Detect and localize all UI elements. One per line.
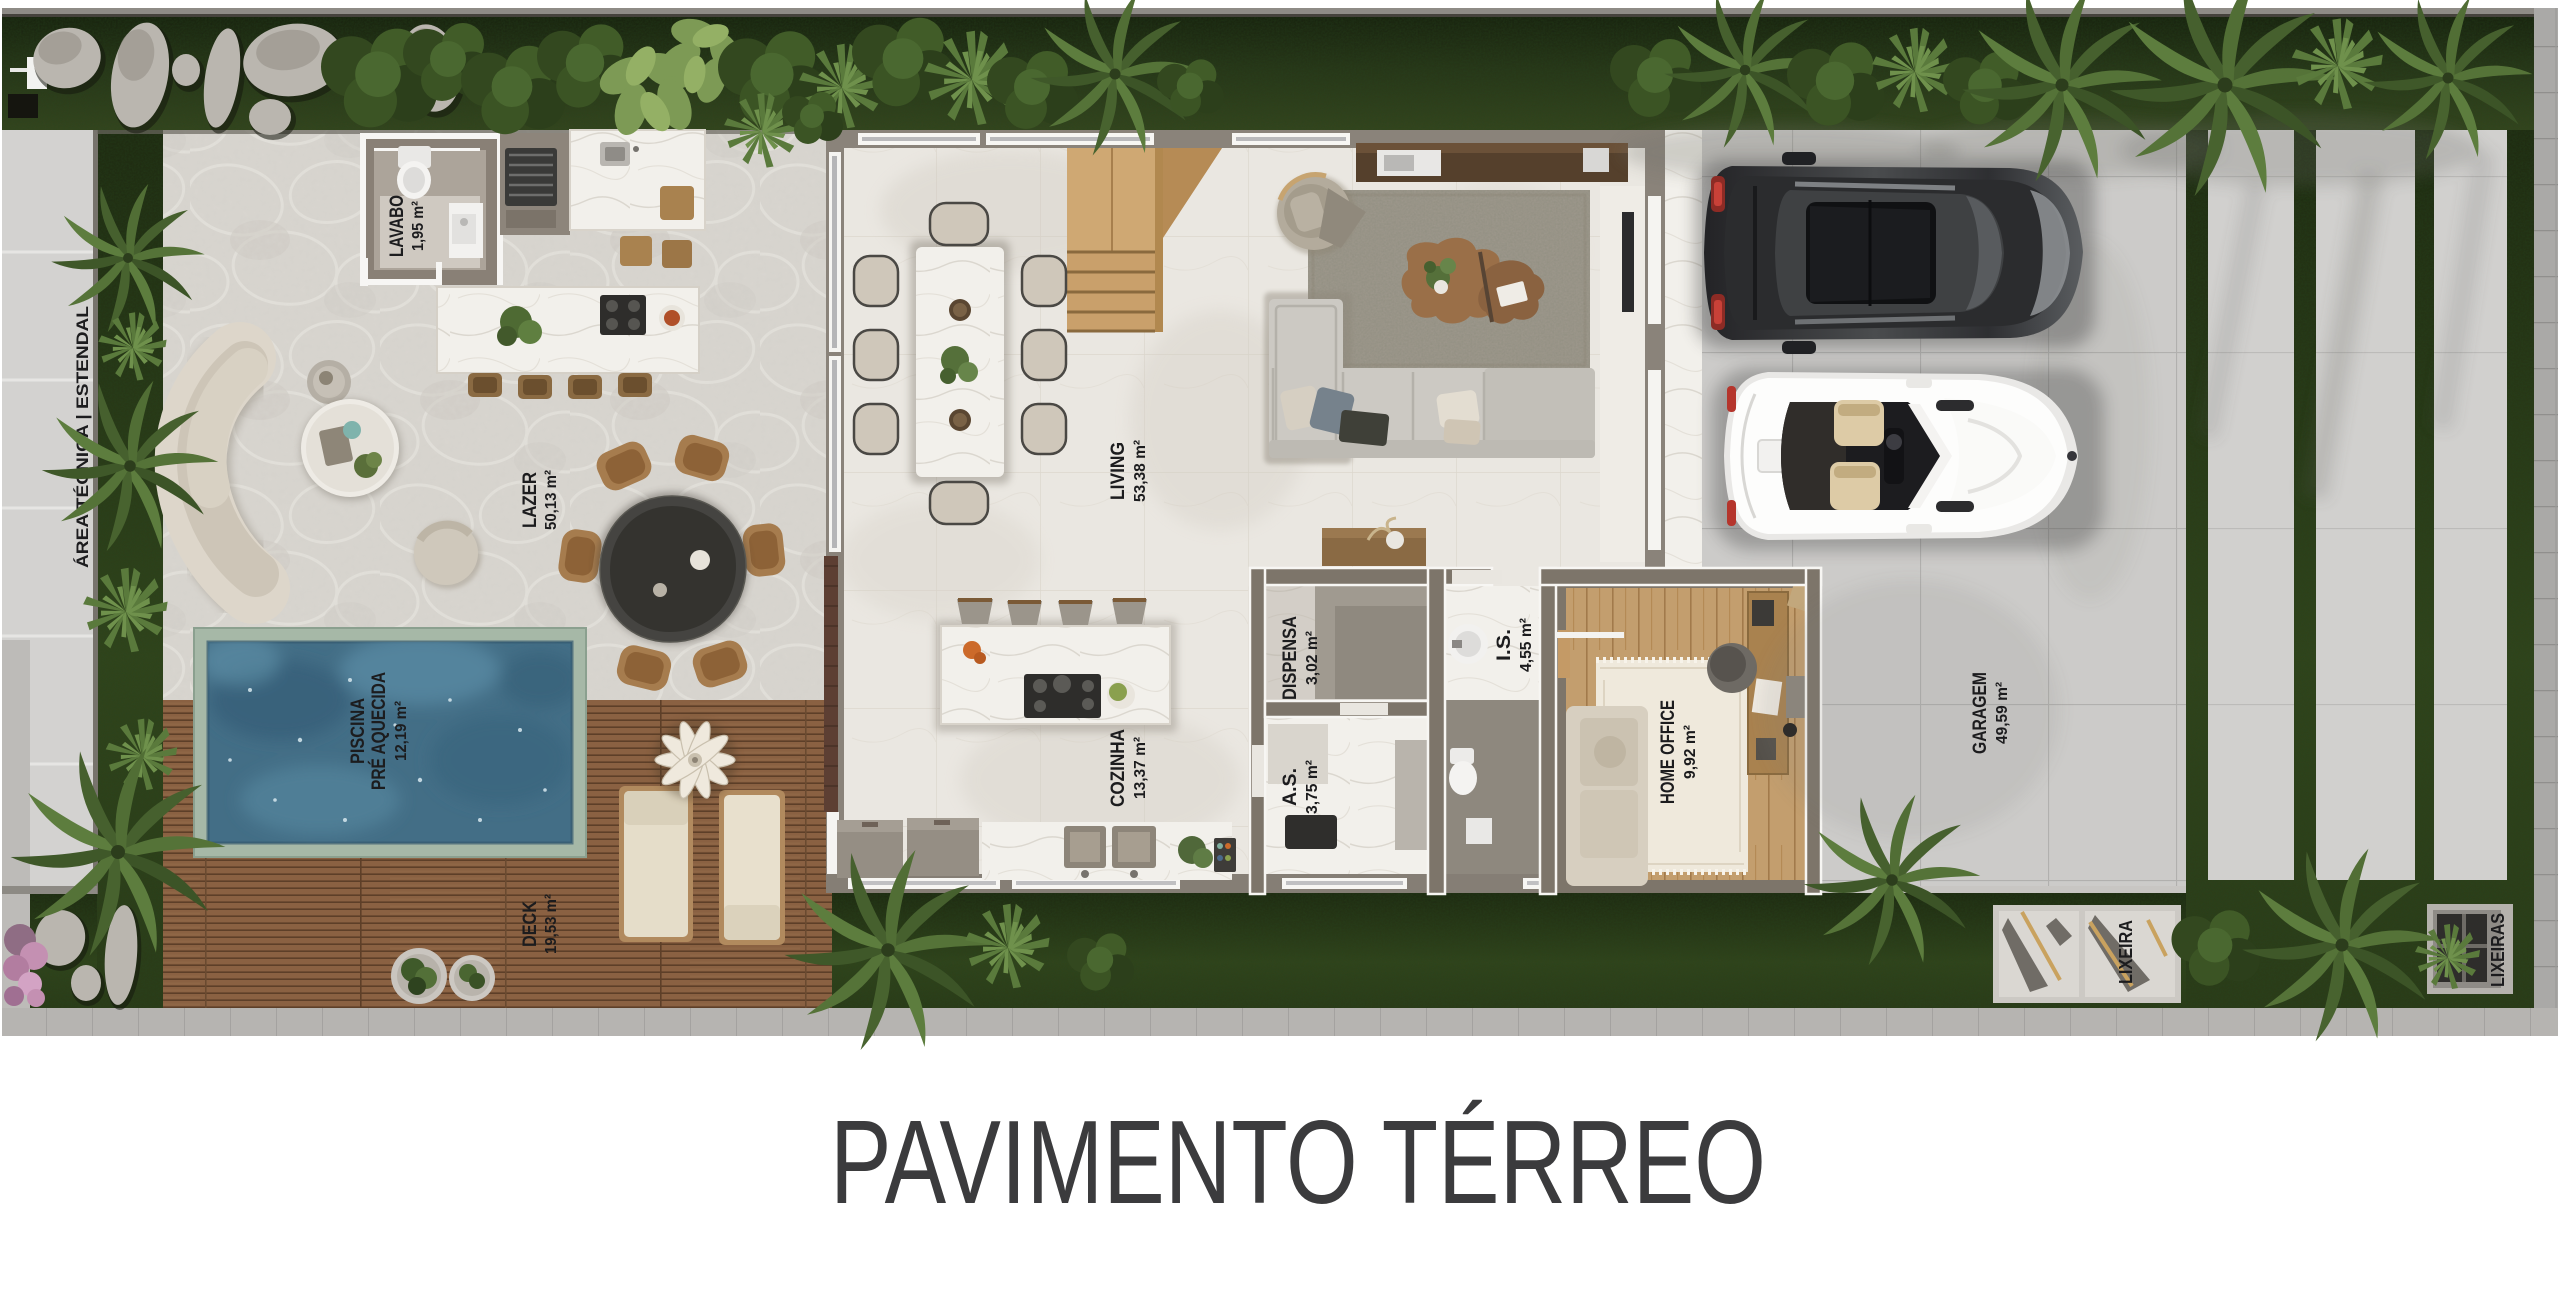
svg-text:1,95 m²: 1,95 m² — [410, 201, 427, 251]
svg-text:DECK: DECK — [520, 901, 541, 947]
svg-text:A.S.: A.S. — [1280, 768, 1301, 806]
svg-text:LIVING: LIVING — [1108, 442, 1129, 500]
svg-text:HOME OFFICE: HOME OFFICE — [1658, 700, 1679, 804]
svg-text:12,19 m²: 12,19 m² — [393, 701, 410, 761]
svg-text:50,13 m²: 50,13 m² — [543, 470, 560, 530]
svg-text:LIXEIRAS: LIXEIRAS — [2488, 913, 2508, 987]
svg-text:GARAGEM: GARAGEM — [1970, 672, 1991, 754]
svg-text:LAZER: LAZER — [520, 472, 541, 528]
svg-text:PAVIMENTO TÉRREO: PAVIMENTO TÉRREO — [830, 1096, 1766, 1229]
svg-text:53,38 m²: 53,38 m² — [1132, 440, 1149, 502]
svg-text:DISPENSA: DISPENSA — [1280, 616, 1301, 700]
svg-text:PISCINA: PISCINA — [348, 698, 369, 764]
svg-text:9,92 m²: 9,92 m² — [1682, 725, 1699, 779]
svg-text:COZINHA: COZINHA — [1108, 729, 1129, 807]
svg-text:49,59 m²: 49,59 m² — [1994, 682, 2011, 744]
svg-text:LIXEIRA: LIXEIRA — [2116, 920, 2136, 984]
svg-text:3,75 m²: 3,75 m² — [1304, 760, 1321, 814]
svg-text:19,53 m²: 19,53 m² — [543, 894, 560, 954]
svg-text:PRÉ AQUECIDA: PRÉ AQUECIDA — [368, 672, 390, 790]
svg-text:13,37 m²: 13,37 m² — [1132, 737, 1149, 799]
svg-text:4,55 m²: 4,55 m² — [1518, 618, 1535, 672]
svg-text:I.S.: I.S. — [1494, 629, 1515, 661]
svg-text:3,02 m²: 3,02 m² — [1304, 631, 1321, 685]
svg-text:LAVABO: LAVABO — [387, 195, 408, 257]
